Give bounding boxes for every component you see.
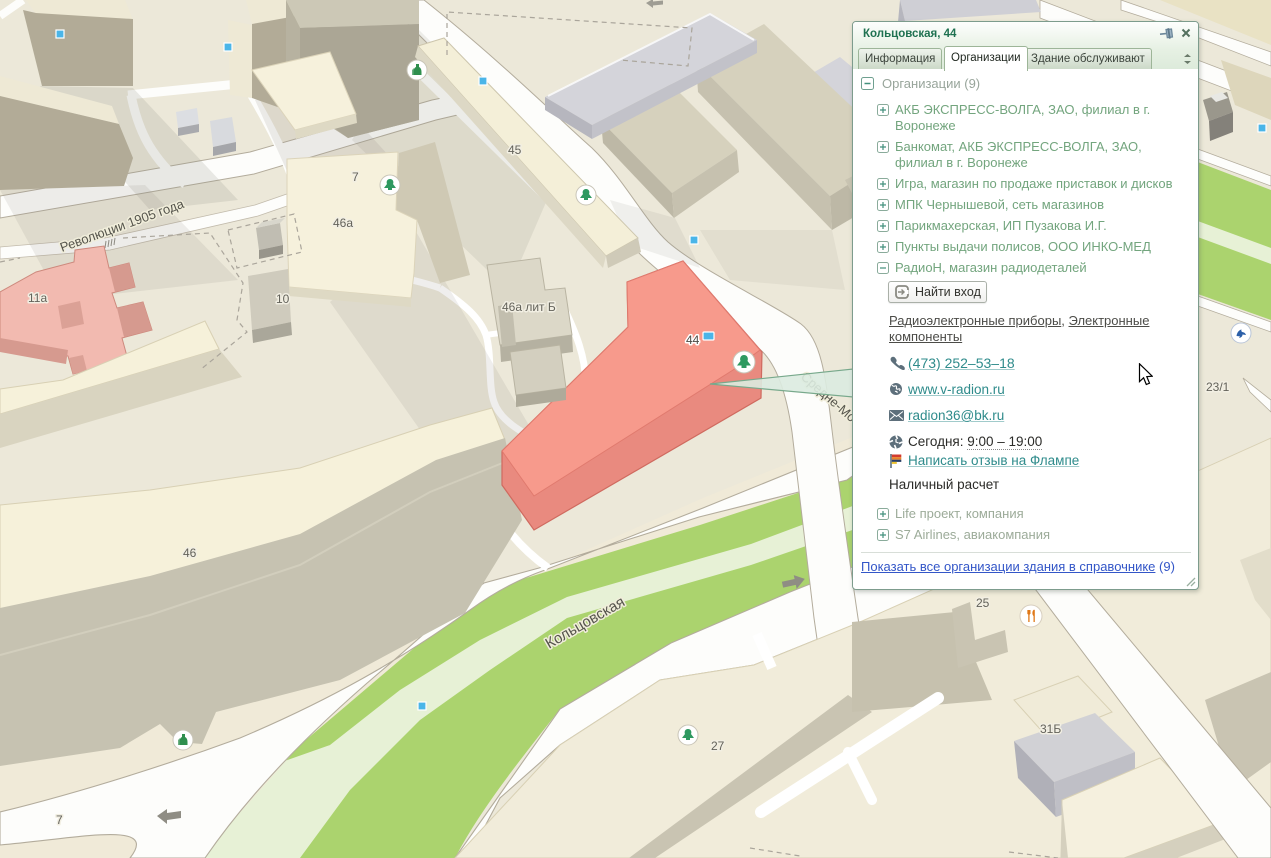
svg-text:44: 44 [686,333,700,347]
svg-text:46: 46 [183,546,197,560]
svg-text:31Б: 31Б [1040,722,1061,736]
svg-text:25: 25 [976,596,990,610]
svg-text:23/1: 23/1 [1206,380,1230,394]
svg-text:11а: 11а [28,291,47,305]
svg-text:7: 7 [56,813,63,827]
svg-text:45: 45 [508,143,522,157]
svg-text:27: 27 [711,739,725,753]
svg-text:10: 10 [276,292,290,306]
svg-text:7: 7 [352,170,359,184]
svg-text:46а лит Б: 46а лит Б [502,300,556,314]
svg-text:46а: 46а [333,216,353,230]
